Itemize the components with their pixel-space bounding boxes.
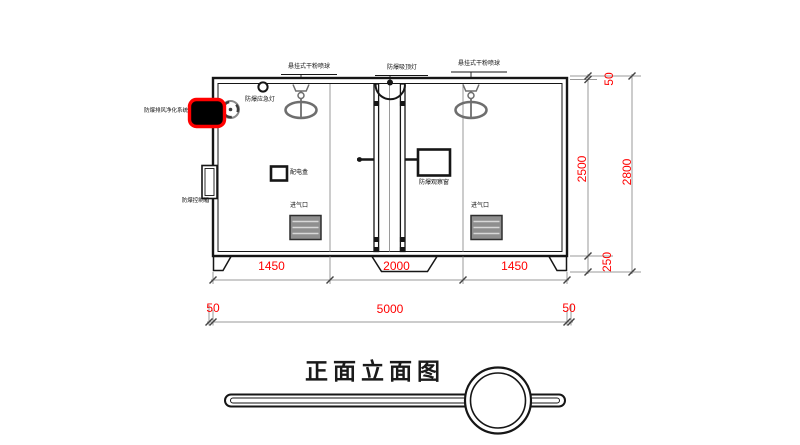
- dim-body-height: 2500: [576, 147, 588, 191]
- dim-section-left: 1450: [243, 260, 300, 272]
- purifier-unit-highlighted: [190, 100, 225, 127]
- control-box-label: 防爆控制箱: [180, 199, 211, 205]
- air-inlet-right-icon: [471, 216, 502, 240]
- page-title: 正面立面图: [275, 352, 475, 386]
- dim-overall-height: 2800: [621, 150, 633, 194]
- observation-window-icon: [418, 150, 450, 176]
- control-box-icon: [202, 166, 217, 199]
- power-box-icon: [271, 167, 287, 181]
- power-box-label: 配电盒: [290, 170, 312, 176]
- dim-top-offset: 50: [603, 67, 615, 91]
- emergency-light-label: 防爆应急灯: [240, 97, 280, 103]
- dim-section-right: 1450: [486, 260, 543, 272]
- air-inlet-left-label: 进气口: [290, 203, 312, 209]
- dim-margin-right: 50: [554, 302, 584, 314]
- dim-margin-left: 50: [198, 302, 228, 314]
- dim-overall-width: 5000: [362, 303, 418, 315]
- observation-window-label: 防爆观察窗: [414, 180, 454, 186]
- dim-base-height: 250: [601, 245, 613, 279]
- elevation-drawing-canvas: 悬挂式干粉喷球 防爆吸顶灯 悬挂式干粉喷球 防爆应急灯 防爆排风净化系统 防爆控…: [0, 0, 800, 445]
- ceiling-light-label: 防爆吸顶灯: [376, 65, 428, 71]
- dim-section-mid: 2000: [368, 260, 425, 272]
- air-inlet-left-icon: [290, 216, 321, 240]
- sprinkler-left-label: 悬挂式干粉喷球: [277, 64, 341, 70]
- sprinkler-right-label: 悬挂式干粉喷球: [447, 61, 511, 67]
- air-inlet-right-label: 进气口: [471, 203, 493, 209]
- purifier-system-label: 防爆排风净化系统: [130, 109, 188, 115]
- emergency-light-icon: [258, 82, 267, 91]
